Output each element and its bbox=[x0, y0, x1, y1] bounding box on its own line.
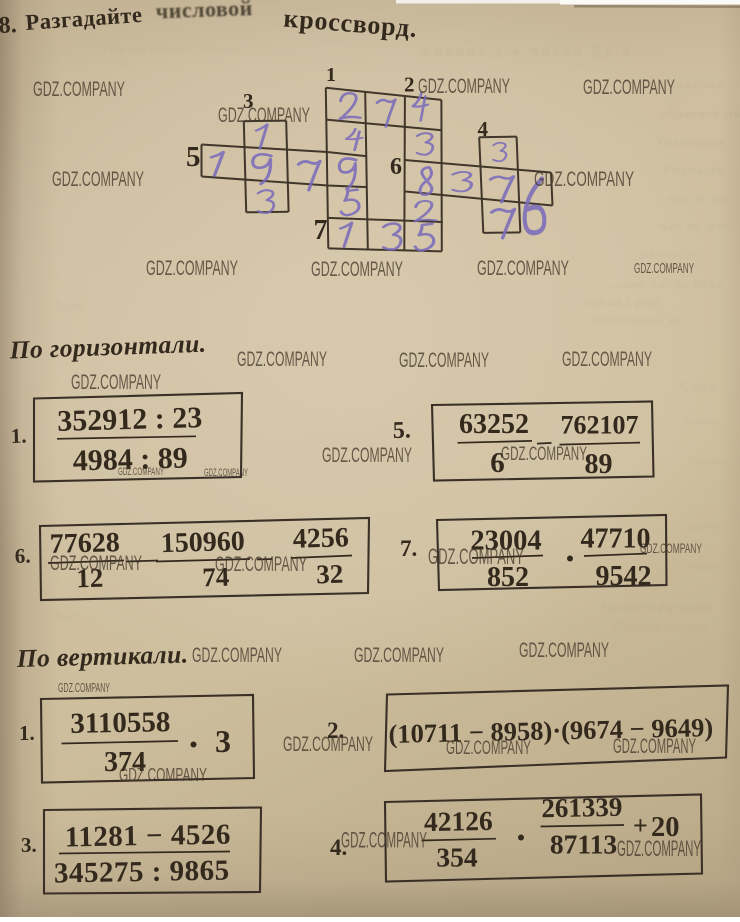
svg-text:Разгадайте: Разгадайте bbox=[25, 2, 144, 35]
svg-text:вычит: вычит bbox=[684, 413, 723, 428]
svg-text:7: 7 bbox=[314, 215, 328, 246]
svg-text:GDZ.COMPANY: GDZ.COMPANY bbox=[322, 444, 412, 467]
svg-text:3: 3 bbox=[215, 723, 231, 759]
svg-text:частн: частн bbox=[688, 558, 722, 573]
svg-text:GDZ.COMPANY: GDZ.COMPANY bbox=[477, 257, 569, 280]
svg-text:4256: 4256 bbox=[292, 522, 349, 554]
svg-text:GDZ.COMPANY: GDZ.COMPANY bbox=[50, 552, 142, 575]
svg-text:352912 : 23: 352912 : 23 bbox=[57, 401, 203, 438]
svg-text:7.: 7. bbox=[400, 536, 417, 561]
svg-text:9542: 9542 bbox=[596, 561, 652, 592]
svg-text:GDZ.COMPANY: GDZ.COMPANY bbox=[418, 75, 510, 98]
svg-text:3.: 3. bbox=[21, 833, 37, 857]
svg-text:1.: 1. bbox=[19, 721, 35, 745]
svg-text:1-е число 2-е число: 1-е число 2-е число bbox=[600, 600, 712, 615]
svg-text:GDZ.COMPANY: GDZ.COMPANY bbox=[617, 836, 701, 861]
svg-text:GDZ.COMPANY: GDZ.COMPANY bbox=[311, 258, 403, 281]
svg-text:762107: 762107 bbox=[561, 411, 639, 440]
svg-text:GDZ.COMPANY: GDZ.COMPANY bbox=[562, 348, 652, 371]
svg-text:6: 6 bbox=[390, 154, 402, 180]
svg-text:GDZ.COMPANY: GDZ.COMPANY bbox=[33, 78, 125, 101]
svg-text:Выбранное: Выбранное bbox=[648, 76, 723, 91]
svg-text:GDZ.COMPANY: GDZ.COMPANY bbox=[192, 644, 282, 667]
svg-text:числовой: числовой bbox=[155, 0, 253, 23]
svg-text:63252: 63252 bbox=[459, 409, 529, 440]
svg-text:GDZ.COMPANY: GDZ.COMPANY bbox=[399, 349, 489, 372]
svg-text:GDZ.COMPANY: GDZ.COMPANY bbox=[58, 681, 110, 695]
svg-text:GDZ.COMPANY: GDZ.COMPANY bbox=[501, 443, 587, 465]
svg-text:GDZ.COMPANY: GDZ.COMPANY bbox=[354, 644, 444, 667]
svg-text:По горизонтали.: По горизонтали. bbox=[8, 329, 207, 365]
svg-text:GDZ.COMPANY: GDZ.COMPANY bbox=[613, 735, 696, 758]
svg-text:1.: 1. bbox=[10, 423, 27, 448]
svg-text:3110558: 3110558 bbox=[70, 706, 170, 740]
svg-text:89: 89 bbox=[585, 449, 613, 480]
svg-text:GDZ.COMPANY: GDZ.COMPANY bbox=[71, 371, 161, 394]
svg-text:261339: 261339 bbox=[541, 792, 623, 823]
svg-text:42126: 42126 bbox=[424, 805, 493, 837]
svg-text:Сумма: Сумма bbox=[688, 453, 728, 468]
svg-text:Уменьши: Уменьши bbox=[662, 162, 725, 177]
svg-text:...ное число перв: ...ное число перв bbox=[610, 276, 725, 291]
svg-text:Слага: Слага bbox=[680, 378, 716, 393]
svg-text:GDZ.COMPANY: GDZ.COMPANY bbox=[204, 467, 248, 479]
svg-text:делим: делим bbox=[684, 518, 720, 533]
svg-text:GDZ.COMPANY: GDZ.COMPANY bbox=[146, 257, 238, 280]
svg-text:GDZ.COMPANY: GDZ.COMPANY bbox=[237, 348, 327, 371]
svg-text:кроссворд.: кроссворд. bbox=[283, 4, 419, 43]
svg-text:6.: 6. bbox=[14, 543, 31, 568]
svg-text:32: 32 bbox=[316, 559, 344, 590]
svg-text:4: 4 bbox=[478, 117, 489, 141]
svg-text:GDZ.COMPANY: GDZ.COMPANY bbox=[634, 260, 694, 277]
svg-text:Степень во-ного: Степень во-ного bbox=[612, 618, 708, 633]
svg-text:87113: 87113 bbox=[550, 829, 617, 860]
svg-text:GDZ.COMPANY: GDZ.COMPANY bbox=[52, 168, 144, 191]
svg-text:38.: 38. bbox=[0, 12, 17, 40]
svg-text:GDZ.COMPANY: GDZ.COMPANY bbox=[519, 639, 609, 662]
svg-text:GDZ.COMPANY: GDZ.COMPANY bbox=[218, 104, 310, 127]
svg-text:Увеличьте: Увеличьте bbox=[655, 134, 726, 149]
svg-text:GDZ.COMPANY: GDZ.COMPANY bbox=[446, 737, 531, 759]
svg-text:345275 : 9865: 345275 : 9865 bbox=[54, 854, 230, 889]
svg-text:разность: разность bbox=[640, 246, 700, 261]
svg-text:сла на 2 раза: сла на 2 раза bbox=[585, 294, 661, 309]
svg-text:час во-ное: час во-ное bbox=[660, 218, 730, 233]
svg-text:GDZ.COMPANY: GDZ.COMPANY bbox=[428, 544, 524, 569]
svg-text:GDZ.COMPANY: GDZ.COMPANY bbox=[118, 466, 164, 478]
svg-text:Выч: Выч bbox=[55, 608, 81, 623]
svg-text:Упражнение число: Упражнение число bbox=[100, 40, 243, 55]
svg-text:GDZ.COMPANY: GDZ.COMPANY bbox=[215, 553, 307, 576]
svg-text:11281 − 4526: 11281 − 4526 bbox=[65, 819, 231, 854]
svg-text:Знач: Знач bbox=[55, 298, 83, 313]
svg-text:354: 354 bbox=[436, 842, 478, 873]
svg-text:GDZ.COMPANY: GDZ.COMPANY bbox=[534, 168, 634, 191]
svg-text:2: 2 bbox=[404, 73, 415, 97]
svg-text:число на: число на bbox=[668, 190, 728, 205]
svg-text:1: 1 bbox=[326, 64, 336, 86]
svg-text:обратное числ: обратное числ bbox=[660, 106, 740, 121]
svg-text:жнение 2-е число Во-в: жнение 2-е число Во-в bbox=[420, 44, 634, 60]
svg-text:GDZ.COMPANY: GDZ.COMPANY bbox=[283, 733, 373, 756]
svg-text:5.: 5. bbox=[392, 418, 411, 444]
svg-text:GDZ.COMPANY: GDZ.COMPANY bbox=[341, 828, 427, 853]
svg-text:5: 5 bbox=[186, 141, 201, 173]
svg-text:GDZ.COMPANY: GDZ.COMPANY bbox=[640, 540, 702, 556]
svg-text:GDZ.COMPANY: GDZ.COMPANY bbox=[119, 765, 207, 785]
svg-text:По вертикали.: По вертикали. bbox=[15, 640, 188, 674]
svg-text:Знаменатель др: Знаменатель др bbox=[588, 312, 681, 327]
